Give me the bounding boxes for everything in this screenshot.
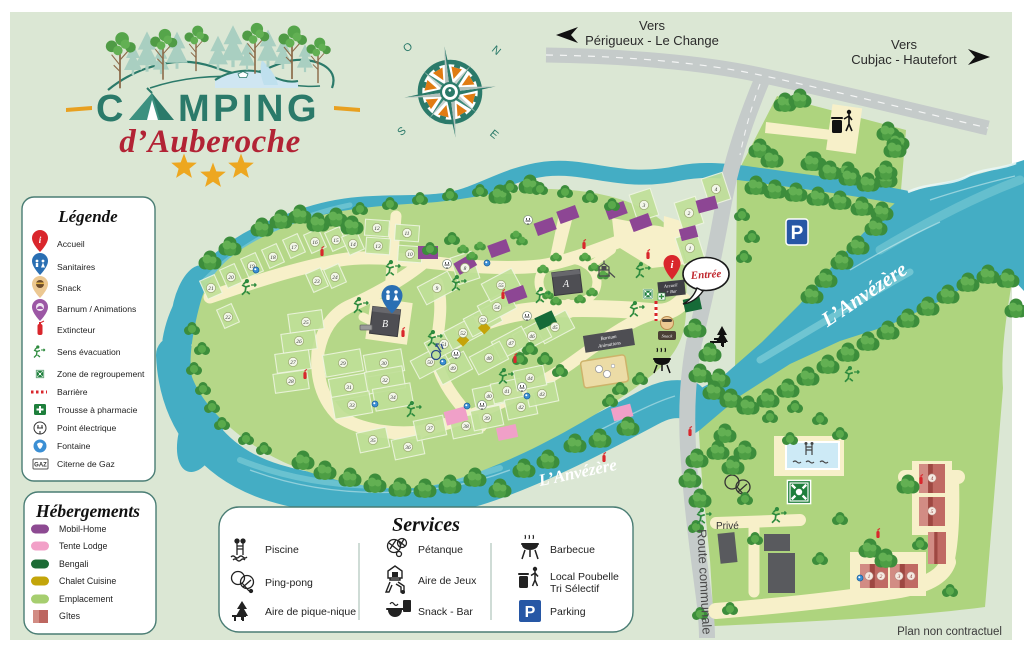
svg-text:44: 44 bbox=[527, 376, 533, 382]
svg-text:Bengali: Bengali bbox=[59, 559, 88, 569]
svg-text:54: 54 bbox=[494, 305, 500, 311]
svg-text:Fontaine: Fontaine bbox=[57, 441, 91, 451]
svg-text:17: 17 bbox=[291, 245, 297, 251]
svg-text:GAZ: GAZ bbox=[34, 463, 47, 469]
svg-text:4: 4 bbox=[910, 573, 913, 580]
svg-text:Ping-pong: Ping-pong bbox=[265, 577, 313, 589]
svg-text:Aire de Jeux: Aire de Jeux bbox=[418, 575, 477, 587]
svg-text:P: P bbox=[525, 604, 536, 621]
svg-text:41: 41 bbox=[504, 389, 510, 395]
svg-text:23: 23 bbox=[314, 279, 320, 285]
svg-text:Parking: Parking bbox=[550, 606, 586, 618]
svg-text:Piscine: Piscine bbox=[265, 544, 299, 556]
svg-text:Snack - Bar: Snack - Bar bbox=[418, 606, 473, 618]
svg-text:40: 40 bbox=[486, 394, 492, 400]
svg-text:3: 3 bbox=[642, 203, 646, 209]
svg-text:1: 1 bbox=[868, 574, 871, 580]
svg-text:50: 50 bbox=[427, 360, 433, 366]
svg-text:38: 38 bbox=[462, 424, 469, 430]
svg-text:Sens évacuation: Sens évacuation bbox=[57, 347, 121, 357]
svg-text:d’Auberoche: d’Auberoche bbox=[119, 124, 301, 160]
svg-text:Snack: Snack bbox=[57, 283, 82, 293]
svg-text:43: 43 bbox=[539, 392, 545, 398]
svg-text:Privé: Privé bbox=[716, 521, 739, 532]
svg-text:Hébergements: Hébergements bbox=[35, 501, 140, 521]
svg-text:5: 5 bbox=[931, 509, 934, 515]
svg-text:34: 34 bbox=[389, 395, 396, 401]
svg-text:Périgueux - Le Change: Périgueux - Le Change bbox=[585, 33, 719, 48]
svg-text:24: 24 bbox=[332, 275, 338, 281]
svg-text:32: 32 bbox=[381, 378, 388, 384]
svg-text:Barrière: Barrière bbox=[57, 387, 88, 397]
svg-text:25: 25 bbox=[303, 320, 309, 326]
svg-text:1: 1 bbox=[689, 246, 692, 252]
svg-text:Mobil-Home: Mobil-Home bbox=[59, 524, 107, 534]
svg-text:12: 12 bbox=[374, 226, 380, 232]
svg-text:Vers: Vers bbox=[639, 18, 666, 33]
svg-text:Zone de regroupement: Zone de regroupement bbox=[57, 369, 145, 379]
svg-text:28: 28 bbox=[288, 379, 294, 385]
svg-text:16: 16 bbox=[312, 240, 318, 246]
svg-text:10: 10 bbox=[407, 252, 413, 258]
svg-text:Entrée: Entrée bbox=[689, 268, 721, 282]
svg-text:52: 52 bbox=[460, 331, 466, 337]
svg-text:Sanitaires: Sanitaires bbox=[57, 262, 95, 272]
svg-text:31: 31 bbox=[345, 385, 352, 391]
svg-text:49: 49 bbox=[450, 366, 456, 372]
svg-text:11: 11 bbox=[405, 231, 410, 237]
svg-text:Snack: Snack bbox=[662, 334, 674, 339]
svg-text:35: 35 bbox=[369, 438, 376, 444]
svg-text:14: 14 bbox=[350, 242, 356, 248]
svg-text:29: 29 bbox=[340, 361, 346, 367]
svg-text:4: 4 bbox=[931, 475, 934, 482]
svg-text:9: 9 bbox=[436, 286, 439, 292]
svg-text:13: 13 bbox=[375, 244, 381, 250]
svg-text:46: 46 bbox=[529, 334, 535, 340]
svg-text:45: 45 bbox=[552, 325, 558, 331]
svg-text:36: 36 bbox=[404, 445, 411, 451]
svg-text:33: 33 bbox=[348, 403, 355, 409]
svg-text:Cubjac - Hautefort: Cubjac - Hautefort bbox=[851, 52, 957, 67]
svg-text:39: 39 bbox=[483, 416, 490, 422]
svg-text:Services: Services bbox=[392, 514, 460, 536]
svg-text:Barnum / Animations: Barnum / Animations bbox=[57, 304, 136, 314]
svg-text:A: A bbox=[562, 279, 570, 290]
svg-text:37: 37 bbox=[426, 426, 433, 432]
svg-text:Aire de pique-nique: Aire de pique-nique bbox=[265, 606, 356, 618]
svg-text:Emplacement: Emplacement bbox=[59, 594, 113, 604]
svg-text:4: 4 bbox=[715, 187, 718, 193]
svg-text:30: 30 bbox=[380, 361, 387, 367]
svg-text:22: 22 bbox=[225, 315, 231, 321]
svg-text:Extincteur: Extincteur bbox=[57, 325, 95, 335]
svg-text:Plan non contractuel: Plan non contractuel bbox=[897, 626, 1002, 638]
svg-text:Citerne de Gaz: Citerne de Gaz bbox=[57, 459, 115, 469]
svg-text:2: 2 bbox=[880, 574, 883, 580]
svg-text:Barbecue: Barbecue bbox=[550, 544, 595, 556]
svg-text:Gîtes: Gîtes bbox=[59, 611, 81, 621]
svg-text:26: 26 bbox=[296, 339, 302, 345]
svg-text:Vers: Vers bbox=[891, 37, 918, 52]
svg-text:53: 53 bbox=[480, 318, 486, 324]
svg-text:Tri Sélectif: Tri Sélectif bbox=[550, 583, 599, 595]
svg-text:Trousse à pharmacie: Trousse à pharmacie bbox=[57, 405, 138, 415]
svg-text:55: 55 bbox=[498, 283, 504, 289]
svg-text:Point électrique: Point électrique bbox=[57, 423, 116, 433]
svg-text:20: 20 bbox=[228, 275, 234, 281]
svg-text:27: 27 bbox=[290, 360, 296, 366]
svg-text:B: B bbox=[382, 319, 388, 330]
svg-text:Légende: Légende bbox=[57, 207, 118, 226]
svg-text:2: 2 bbox=[688, 211, 691, 217]
svg-text:15: 15 bbox=[333, 238, 339, 244]
svg-text:Chalet Cuisine: Chalet Cuisine bbox=[59, 576, 116, 586]
svg-text:Accueil: Accueil bbox=[57, 239, 85, 249]
svg-text:3: 3 bbox=[897, 574, 901, 580]
svg-text:48: 48 bbox=[486, 356, 492, 362]
svg-text:42: 42 bbox=[518, 405, 524, 411]
svg-text:P: P bbox=[791, 223, 804, 244]
svg-text:47: 47 bbox=[508, 341, 514, 347]
svg-text:Local Poubelle: Local Poubelle bbox=[550, 571, 619, 583]
svg-text:8: 8 bbox=[464, 266, 467, 272]
svg-text:18: 18 bbox=[270, 255, 276, 261]
svg-text:Pétanque: Pétanque bbox=[418, 544, 463, 556]
svg-text:Tente Lodge: Tente Lodge bbox=[59, 541, 108, 551]
svg-text:21: 21 bbox=[208, 286, 214, 292]
